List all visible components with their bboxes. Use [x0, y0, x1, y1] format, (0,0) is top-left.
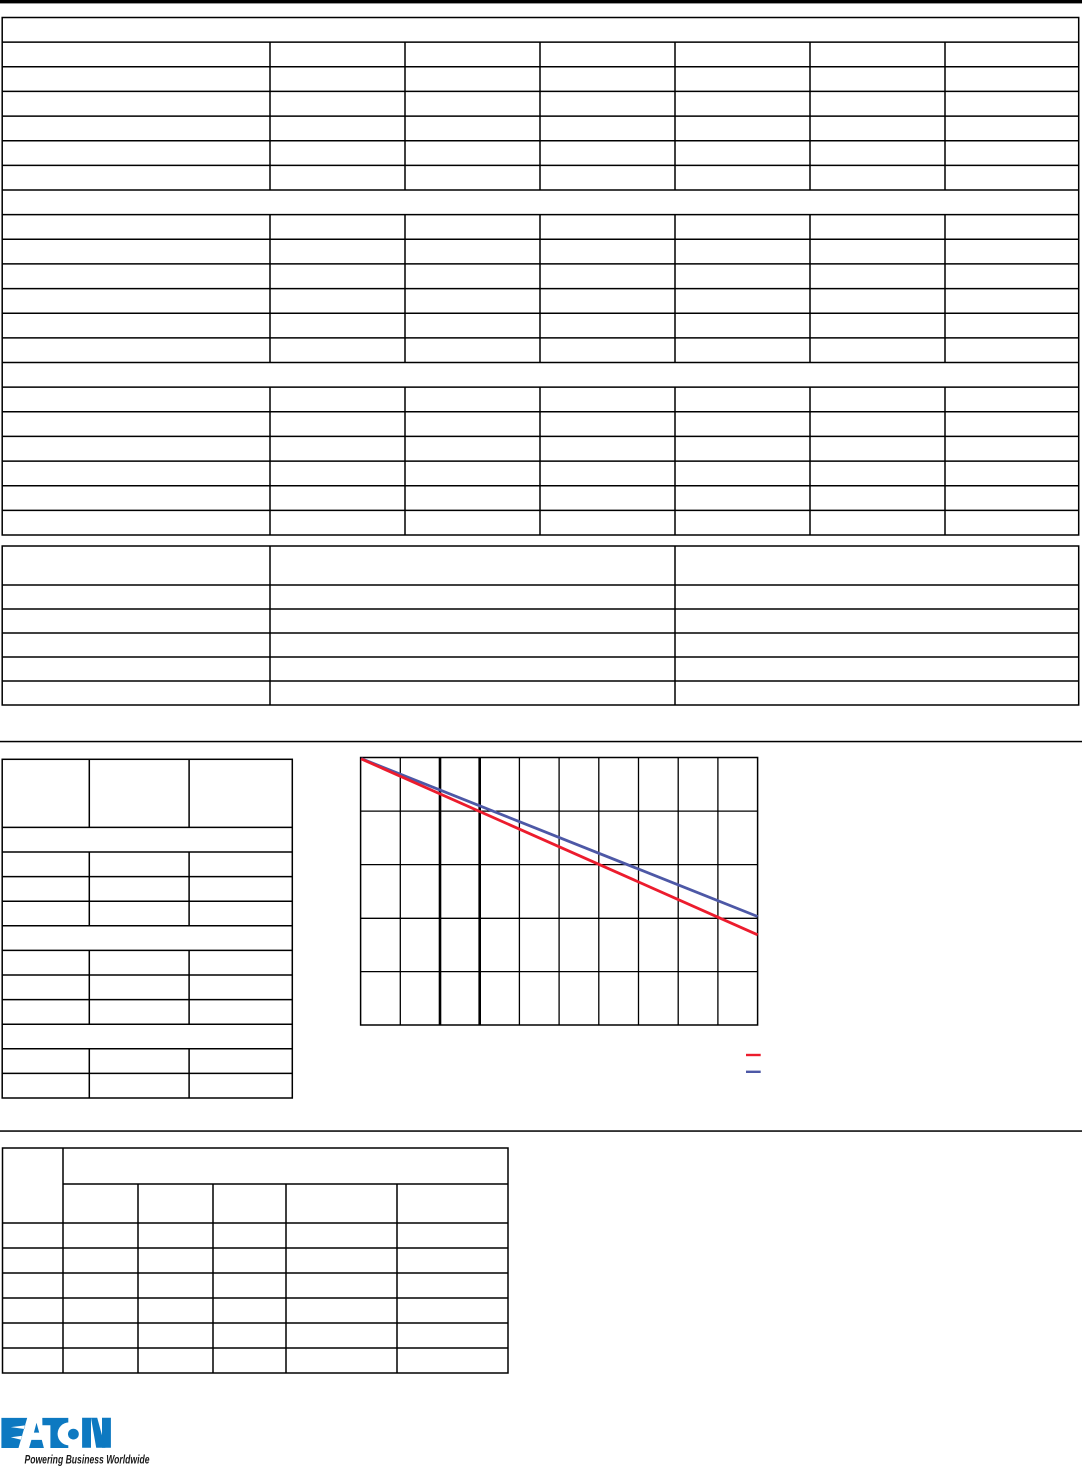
svg-text:Powering Business Worldwide: Powering Business Worldwide — [25, 1453, 150, 1466]
